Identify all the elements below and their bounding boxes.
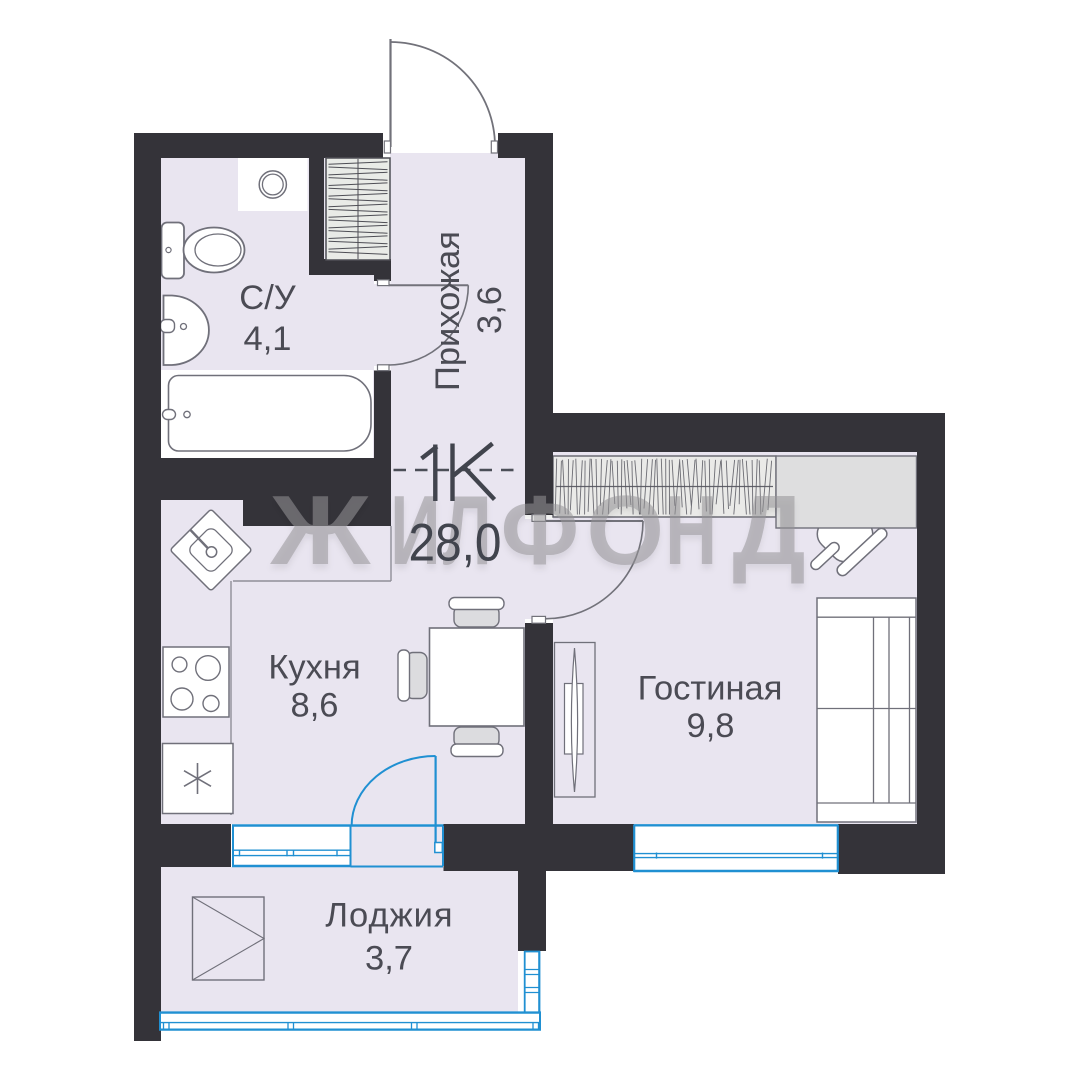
svg-text:О: О [586,475,664,585]
svg-text:Ж: Ж [269,476,371,586]
svg-text:3,6: 3,6 [471,286,509,334]
svg-text:9,8: 9,8 [687,707,735,745]
svg-text:28,0: 28,0 [409,514,502,573]
svg-text:Н: Н [665,476,717,585]
svg-text:8,6: 8,6 [291,687,339,725]
svg-text:Д: Д [732,476,805,585]
svg-text:Кухня: Кухня [268,649,360,687]
svg-text:4,1: 4,1 [244,320,292,358]
svg-text:Прихожая: Прихожая [429,231,467,391]
svg-text:С/У: С/У [239,279,297,317]
svg-text:Лоджия: Лоджия [325,897,453,935]
svg-text:3,7: 3,7 [365,940,413,978]
svg-text:Ф: Ф [501,476,579,585]
svg-text:Гостиная: Гостиная [638,670,783,708]
